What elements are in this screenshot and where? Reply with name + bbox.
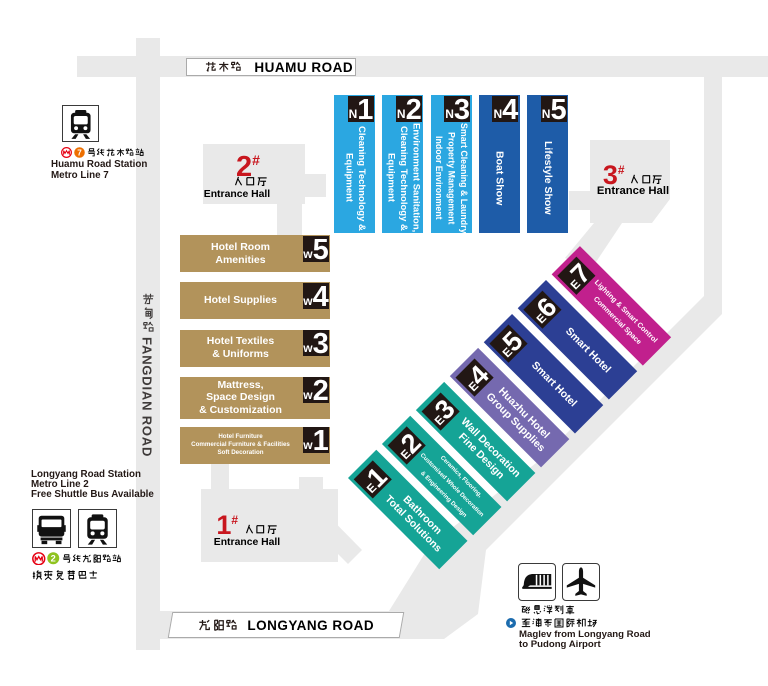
svg-text:7: 7 bbox=[77, 149, 82, 158]
svg-text:2: 2 bbox=[51, 554, 56, 564]
